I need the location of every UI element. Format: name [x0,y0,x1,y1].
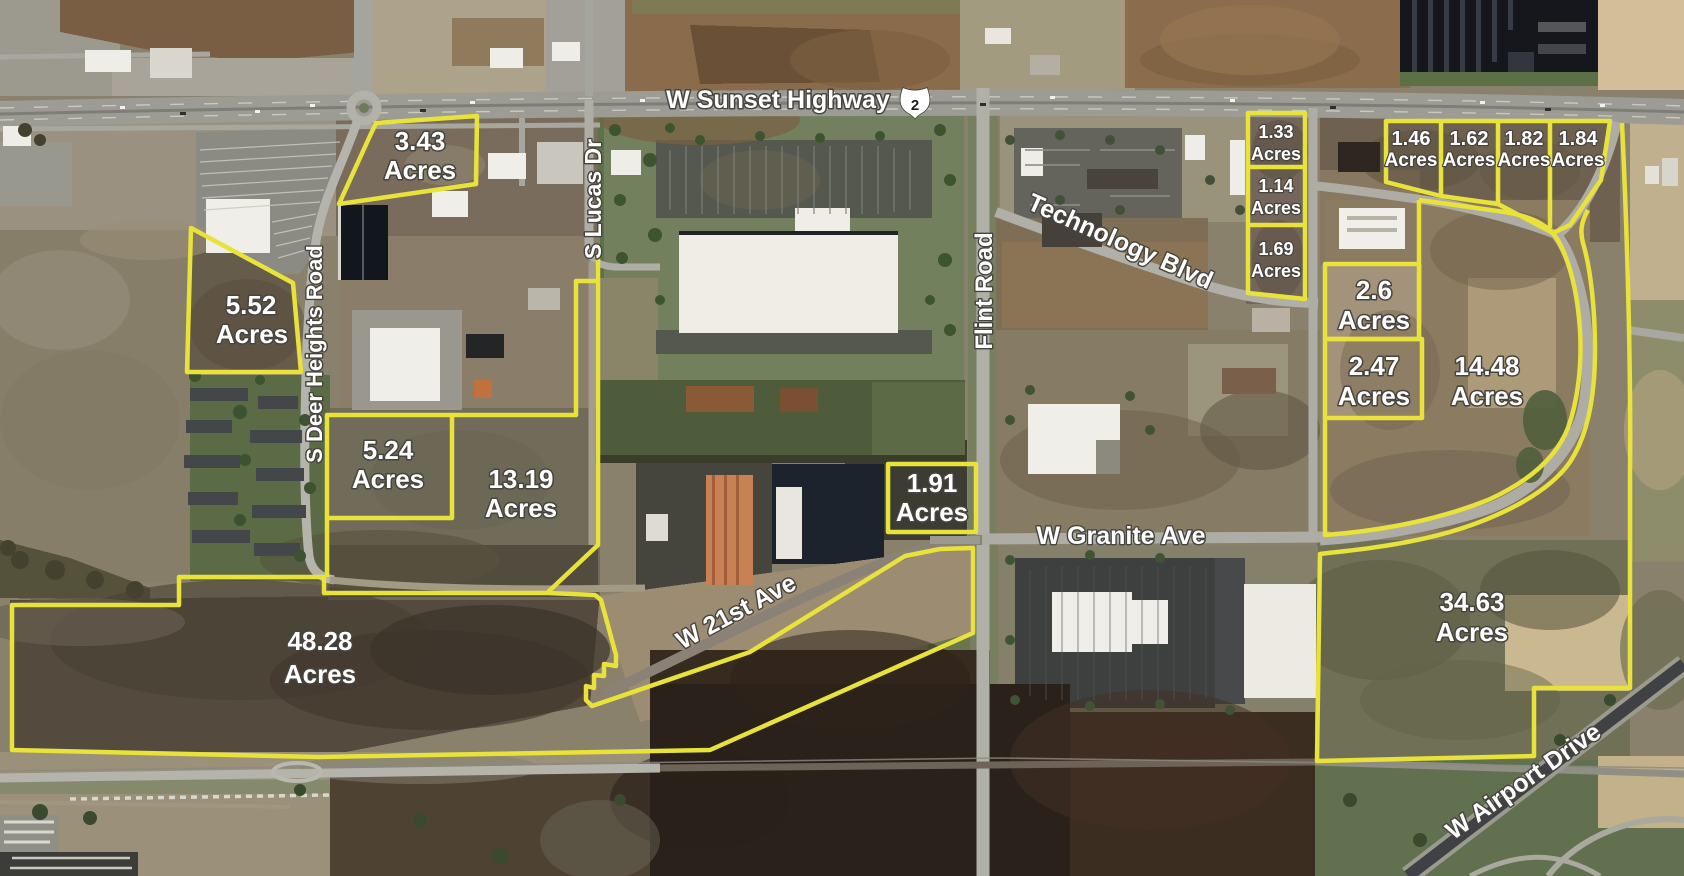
svg-text:3.43: 3.43 [395,126,446,156]
svg-text:Acres: Acres [216,319,288,349]
svg-text:2: 2 [911,97,919,114]
svg-text:Acres: Acres [1552,150,1605,171]
svg-text:S Deer Heights Road: S Deer Heights Road [302,245,327,463]
svg-text:1.46: 1.46 [1392,128,1431,150]
svg-text:Acres: Acres [284,659,356,689]
svg-text:Acres: Acres [896,497,968,527]
svg-text:Acres: Acres [1498,150,1551,171]
svg-text:1.14: 1.14 [1258,176,1293,196]
svg-text:S Lucas Dr: S Lucas Dr [580,139,606,259]
svg-text:14.48: 14.48 [1454,351,1519,381]
svg-text:Acres: Acres [1338,381,1410,411]
svg-text:1.62: 1.62 [1450,128,1489,150]
svg-text:1.69: 1.69 [1258,239,1293,259]
svg-text:Acres: Acres [1436,617,1508,647]
svg-text:48.28: 48.28 [287,626,352,656]
svg-text:Acres: Acres [384,155,456,185]
svg-text:Acres: Acres [1443,150,1496,171]
svg-text:1.91: 1.91 [907,468,958,498]
svg-text:5.24: 5.24 [363,435,414,465]
svg-text:W Granite Ave: W Granite Ave [1036,522,1205,550]
svg-text:1.33: 1.33 [1258,122,1293,142]
svg-text:Acres: Acres [1251,144,1301,164]
svg-text:Acres: Acres [1338,305,1410,335]
svg-text:5.52: 5.52 [226,290,277,320]
svg-text:W Sunset Highway: W Sunset Highway [666,86,890,114]
svg-text:2.6: 2.6 [1356,275,1392,305]
svg-text:Acres: Acres [352,464,424,494]
svg-text:Acres: Acres [485,493,557,523]
svg-text:Acres: Acres [1385,150,1438,171]
svg-text:1.82: 1.82 [1505,128,1544,150]
svg-text:2.47: 2.47 [1349,351,1400,381]
svg-text:Acres: Acres [1251,261,1301,281]
svg-text:Acres: Acres [1251,198,1301,218]
svg-text:13.19: 13.19 [488,464,553,494]
svg-text:Flint Road: Flint Road [971,232,998,349]
svg-text:34.63: 34.63 [1439,587,1504,617]
svg-text:Acres: Acres [1451,381,1523,411]
svg-text:1.84: 1.84 [1559,128,1599,150]
